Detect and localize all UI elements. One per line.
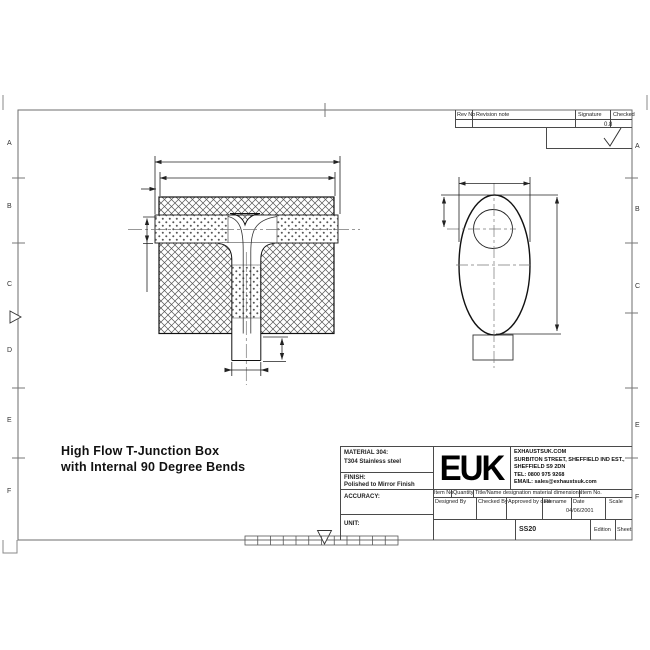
- company-logo: EUK: [434, 447, 509, 488]
- date-value: 04/06/2001: [566, 508, 594, 515]
- zone-letter-left-f: F: [7, 488, 11, 495]
- designation-header: Title/Name designation material dimensio…: [475, 490, 582, 497]
- filename-header: Filename: [544, 499, 567, 506]
- zone-letter-left-d: D: [7, 347, 12, 354]
- side-end-view: [441, 177, 561, 368]
- quantity-header: Quantity: [453, 490, 473, 497]
- drawing-sheet: Rev No Revision note Signature Checked 0…: [0, 0, 650, 650]
- company-url: EXHAUSTSUK.COM: [514, 449, 625, 457]
- sheet-label: Sheet: [617, 527, 631, 534]
- finish-label: FINISH:: [344, 475, 366, 482]
- rev-no-header: Rev No: [457, 112, 475, 119]
- zone-letter-right-a: A: [635, 143, 640, 150]
- company-street: SURBITON STREET, SHEFFIELD IND EST.,: [514, 457, 625, 465]
- material-value: T304 Stainless steel: [344, 459, 401, 466]
- checked-by-header: Checked By: [478, 499, 508, 506]
- drawing-title-line2: with Internal 90 Degree Bends: [61, 460, 245, 476]
- zone-letter-left-a: A: [7, 140, 12, 147]
- checked-header: Checked: [613, 112, 635, 119]
- company-address: EXHAUSTSUK.COM SURBITON STREET, SHEFFIEL…: [514, 449, 625, 487]
- date-header: Date: [573, 499, 585, 506]
- side-view-pipe-stub: [473, 335, 513, 360]
- accuracy-label: ACCURACY:: [344, 494, 380, 501]
- revision-note-header: Revision note: [476, 112, 509, 119]
- drawing-title-line1: High Flow T-Junction Box: [61, 444, 245, 460]
- item-no-header: Item No: [434, 490, 453, 497]
- surface-finish-value: 0.8: [604, 122, 612, 129]
- zone-letter-right-f: F: [635, 494, 639, 501]
- zone-letter-right-c: C: [635, 283, 640, 290]
- drawing-title: High Flow T-Junction Box with Internal 9…: [61, 444, 245, 475]
- part-number: SS20: [519, 526, 536, 533]
- technical-drawing-canvas: [0, 0, 650, 650]
- zone-letter-left-e: E: [7, 417, 12, 424]
- company-tel: TEL: 0800 975 9268: [514, 472, 625, 480]
- left-centering-mark: [10, 311, 21, 323]
- unit-label: UNIT:: [344, 521, 359, 528]
- finish-value: Polished to Mirror Finish: [344, 482, 415, 489]
- signature-header: Signature: [578, 112, 602, 119]
- material-label: MATERIAL 304:: [344, 450, 388, 457]
- zone-letter-left-c: C: [7, 281, 12, 288]
- scale-header: Scale: [609, 499, 623, 506]
- zone-letter-right-e: E: [635, 422, 640, 429]
- edition-label: Edition: [594, 527, 611, 534]
- bottom-centering-mark: [318, 531, 332, 545]
- zone-letter-right-b: B: [635, 206, 640, 213]
- company-city: SHEFFIELD S9 2DN: [514, 464, 625, 472]
- surface-roughness-icon: [604, 128, 621, 146]
- zone-letter-left-b: B: [7, 203, 12, 210]
- front-section-view: [128, 156, 360, 385]
- designed-by-header: Designed By: [435, 499, 466, 506]
- item-no2-header: Item No.: [581, 490, 602, 497]
- company-email: EMAIL: sales@exhaustsuk.com: [514, 479, 625, 487]
